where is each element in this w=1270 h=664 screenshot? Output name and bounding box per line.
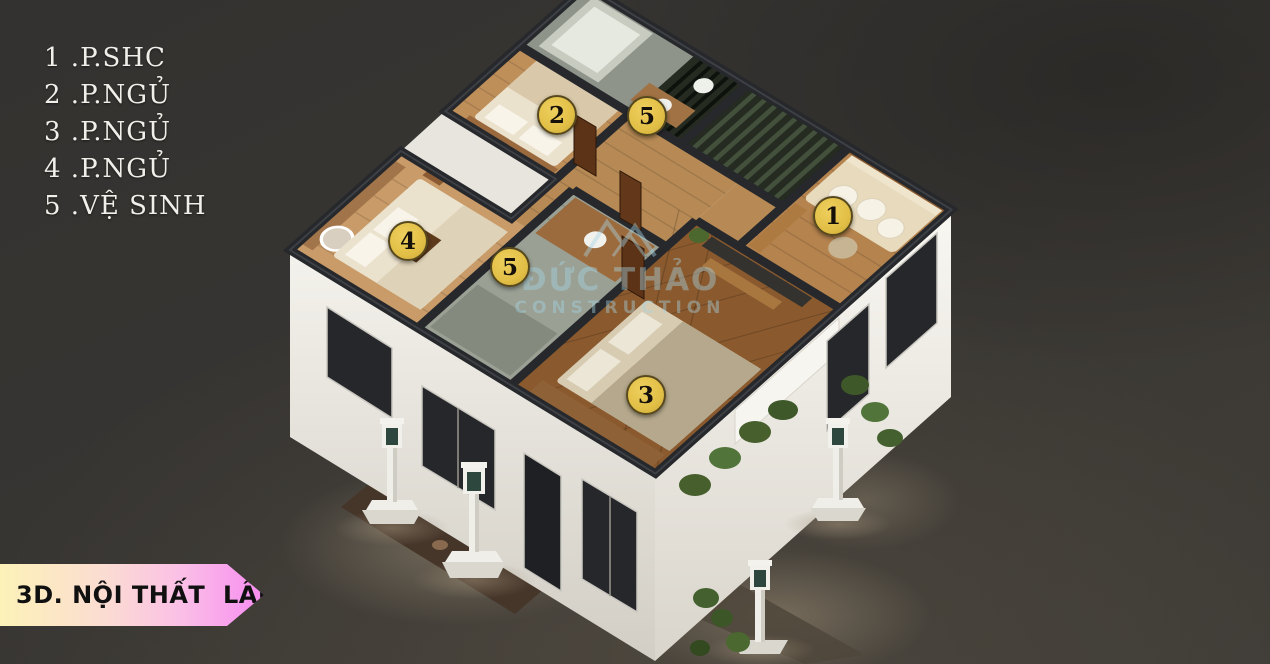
scene: ĐỨC THẢO CONSTRUCTION 2 5 1 4 5 3 1 .P.S… xyxy=(0,0,1270,664)
legend-item: 5 .VỆ SINH xyxy=(44,188,207,225)
title-banner: 3D. NỘI THẤT LẦU 1 xyxy=(0,564,264,626)
room-marker-1: 1 xyxy=(813,196,853,236)
room-marker-3: 3 xyxy=(626,375,666,415)
legend-item: 1 .P.SHC xyxy=(44,40,207,77)
room-marker-5b: 5 xyxy=(490,247,530,287)
legend-item: 4 .P.NGỦ xyxy=(44,151,207,188)
room-legend: 1 .P.SHC 2 .P.NGỦ 3 .P.NGỦ 4 .P.NGỦ 5 .V… xyxy=(44,40,207,225)
room-marker-2: 2 xyxy=(537,95,577,135)
room-marker-5a: 5 xyxy=(627,96,667,136)
room-marker-4: 4 xyxy=(388,221,428,261)
legend-item: 2 .P.NGỦ xyxy=(44,77,207,114)
legend-item: 3 .P.NGỦ xyxy=(44,114,207,151)
